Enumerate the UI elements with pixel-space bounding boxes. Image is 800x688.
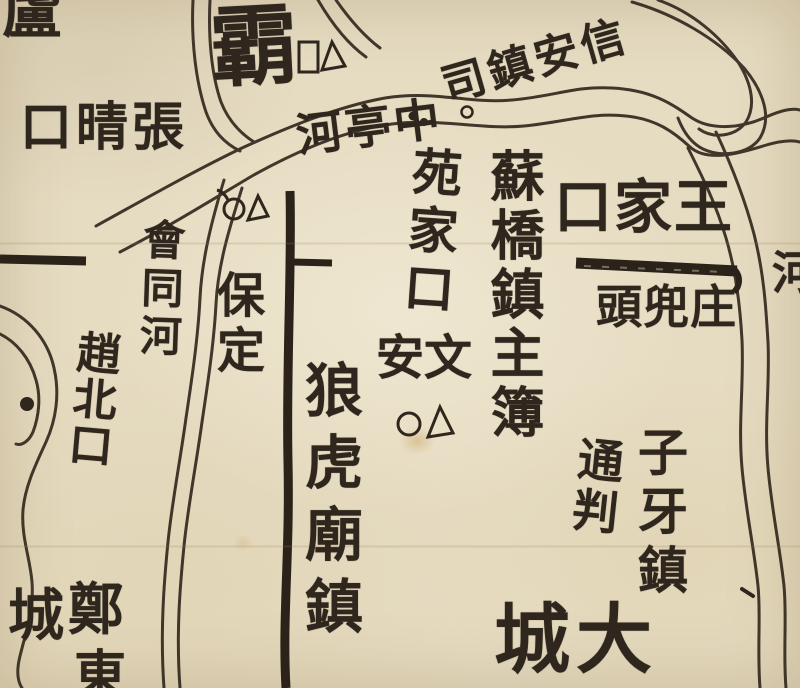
label-yuanjiakou: 苑家口 xyxy=(398,144,460,321)
label-lu-partial: 盧 xyxy=(2,0,62,42)
label-zheng: 鄭 xyxy=(68,582,124,638)
label-huitonghe: 會同河 xyxy=(136,217,183,362)
label-wangjiakou: 口家王 xyxy=(554,178,734,236)
circle-marker xyxy=(398,413,420,435)
dike-bar-central-tick xyxy=(292,262,332,263)
label-he-partial: 河 xyxy=(772,250,800,296)
label-zhuangdoutou: 頭兜庄 xyxy=(596,284,737,330)
label-bazhou: 霸 xyxy=(208,0,301,92)
lake-outline xyxy=(0,334,39,444)
label-dong-partial: 東 xyxy=(74,650,126,688)
label-suqiaozhen-zhubu: 蘇橋鎮主簿 xyxy=(486,148,540,443)
dike-bar-central xyxy=(285,191,291,688)
lake-island-dot xyxy=(20,397,34,411)
label-cheng: 城 xyxy=(8,588,64,644)
triangle-marker xyxy=(428,407,453,437)
ziya-tick-mark xyxy=(742,589,753,596)
label-tongpan: 通判 xyxy=(567,434,623,540)
label-zhangqingkou: 口晴張 xyxy=(20,102,188,154)
dike-bar-west xyxy=(0,259,86,261)
label-baoding: 保定 xyxy=(212,270,260,380)
square-marker xyxy=(299,42,318,72)
label-zhaobeikou: 趙北口 xyxy=(62,328,118,469)
label-ziyazhen: 子牙鎮 xyxy=(634,426,684,603)
triangle-marker xyxy=(322,42,345,70)
river-path xyxy=(658,0,752,135)
triangle-marker xyxy=(248,196,268,220)
map-canvas: 盧 口晴張 霸 司鎮安信 河亭中 苑家口 蘇橋鎮主簿 口家王 頭兜庄 河 會同河… xyxy=(0,0,800,688)
label-wenan: 安文 xyxy=(376,334,472,382)
river-path xyxy=(336,0,380,48)
river-path xyxy=(178,188,242,688)
label-dacheng: 城大 xyxy=(494,602,658,678)
label-langhumiaozhen: 狼虎廟鎮 xyxy=(300,360,358,648)
